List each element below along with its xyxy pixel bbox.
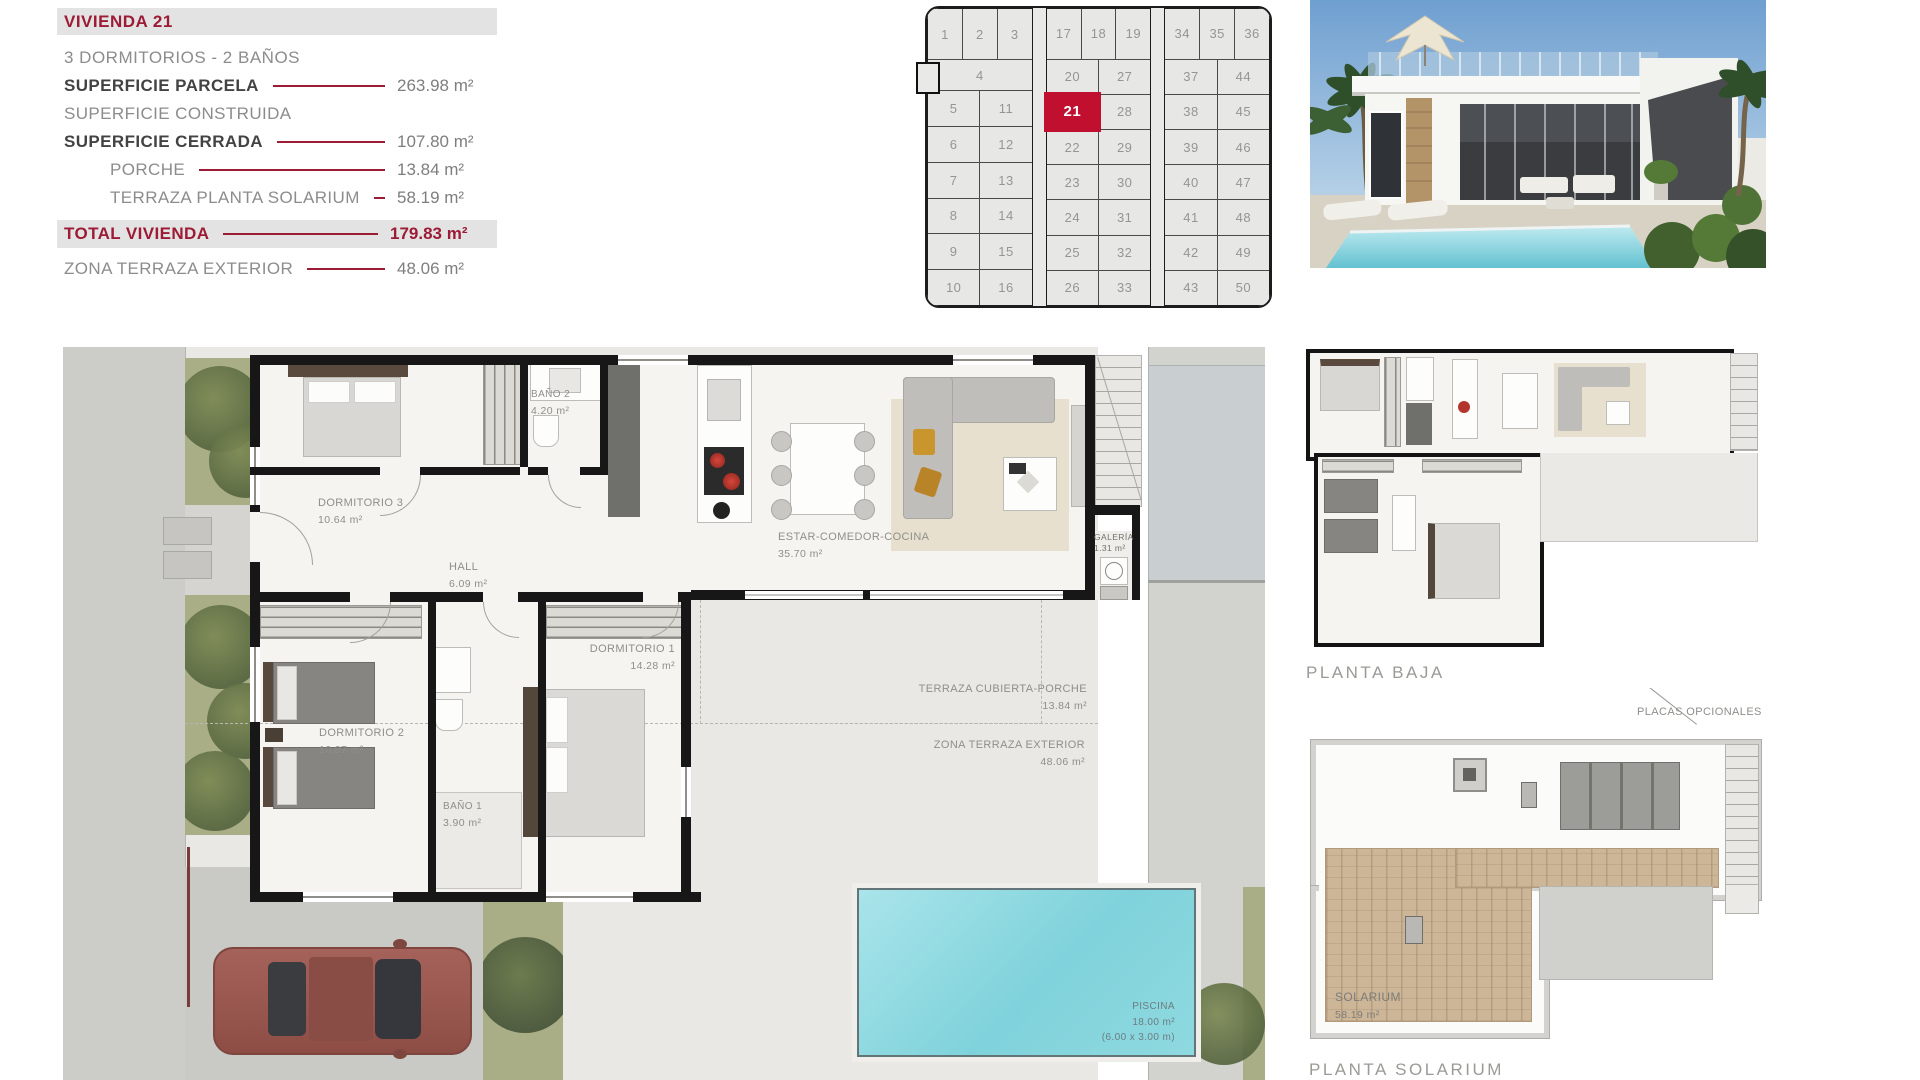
- left-sidewalk: [63, 347, 186, 1080]
- hob-burner: [723, 473, 740, 490]
- site-cell-8: 8: [928, 199, 979, 234]
- car-rear-window: [268, 962, 306, 1036]
- boundary-post: [187, 847, 190, 1007]
- site-cell-41: 41: [1165, 200, 1216, 234]
- roof-slab: [1352, 76, 1664, 94]
- mini-twin-bed: [1324, 519, 1378, 553]
- site-cell-13: 13: [979, 163, 1031, 198]
- window: [250, 647, 260, 722]
- row-value: 263.98 m²: [397, 76, 497, 96]
- row-label: PORCHE: [110, 160, 185, 180]
- site-cell-25: 25: [1047, 236, 1098, 270]
- wall: [600, 355, 608, 467]
- site-cell-34: 34: [1165, 9, 1199, 59]
- wall: [250, 600, 260, 902]
- kitchen-hob: [704, 447, 744, 495]
- unit-subtitle: 3 DORMITORIOS - 2 BAÑOS: [64, 48, 497, 68]
- wall: [250, 355, 260, 447]
- mini-hob: [1458, 401, 1470, 413]
- site-cell-22: 22: [1047, 130, 1098, 164]
- dining-chair: [854, 431, 875, 452]
- site-cell-3: 3: [997, 9, 1032, 59]
- site-cell-40: 40: [1165, 165, 1216, 199]
- deck-vent: [1405, 916, 1423, 944]
- site-plan-annex-box: [916, 62, 940, 94]
- site-cell-38: 38: [1165, 95, 1216, 129]
- villa-photo: [1310, 0, 1766, 268]
- garden-strip-bottom: [483, 897, 563, 1080]
- site-cell-27: 27: [1098, 60, 1150, 94]
- kitchen-tall-units: [608, 361, 640, 517]
- site-plan-grid: 1234511612713814915101617181920272128222…: [925, 6, 1272, 308]
- row-value: 48.06 m²: [397, 259, 497, 279]
- site-cell-20: 20: [1047, 60, 1098, 94]
- washer-drum: [1105, 562, 1123, 580]
- mini-porch: [1540, 453, 1758, 542]
- leader-line: [307, 268, 385, 270]
- bed-headboard: [288, 363, 408, 377]
- site-cell-14: 14: [979, 199, 1031, 234]
- tv-bench: [1071, 405, 1086, 507]
- site-cell-10: 10: [928, 270, 979, 305]
- wall: [250, 505, 260, 512]
- row-label: SUPERFICIE CERRADA: [64, 132, 263, 152]
- site-cell-23: 23: [1047, 165, 1098, 199]
- pillow: [277, 666, 297, 720]
- cushion: [913, 429, 935, 455]
- stone-pillar: [1406, 98, 1432, 205]
- wall: [1132, 515, 1140, 600]
- mini-double-bed: [1428, 523, 1500, 599]
- area-row-parcela: SUPERFICIE PARCELA 263.98 m²: [64, 75, 497, 96]
- total-label: TOTAL VIVIENDA: [64, 224, 209, 244]
- site-cell-29: 29: [1098, 130, 1150, 164]
- site-cell-36: 36: [1234, 9, 1269, 59]
- water-heater: [1100, 586, 1128, 600]
- site-cell-49: 49: [1217, 236, 1269, 270]
- car-mirror: [393, 1049, 407, 1059]
- area-row-zona-terraza: ZONA TERRAZA EXTERIOR 48.06 m²: [64, 258, 497, 279]
- leader-line: [223, 233, 378, 235]
- planta-baja-label: PLANTA BAJA: [1306, 663, 1445, 683]
- pillow: [308, 381, 350, 403]
- site-cell-1: 1: [928, 9, 962, 59]
- label-piscina: PISCINA 18.00 m² (6.00 x 3.00 m): [1015, 999, 1175, 1046]
- wall: [863, 590, 870, 600]
- wall: [528, 467, 548, 475]
- mini-dining: [1502, 373, 1538, 429]
- concrete-roof: [1539, 886, 1713, 980]
- row-label: SUPERFICIE PARCELA: [64, 76, 259, 96]
- wardrobe-dorm3: [483, 363, 522, 465]
- window: [953, 355, 1033, 365]
- car-mirror: [393, 939, 407, 949]
- label-bano1: BAÑO 1 3.90 m²: [443, 799, 482, 831]
- bedroom-window: [1370, 112, 1402, 198]
- window: [250, 447, 260, 505]
- site-cell-39: 39: [1165, 130, 1216, 164]
- site-cell-5: 5: [928, 91, 979, 126]
- site-cell-9: 9: [928, 234, 979, 269]
- mini-bed: [1320, 359, 1380, 411]
- solar-panels: [1560, 762, 1680, 830]
- dining-chair: [854, 465, 875, 486]
- wall: [420, 467, 520, 475]
- solarium-deck-arm: [1455, 848, 1719, 888]
- leader-line: [273, 85, 385, 87]
- mini-closet: [1422, 459, 1522, 473]
- row-label: ZONA TERRAZA EXTERIOR: [64, 259, 293, 279]
- wall: [580, 467, 608, 475]
- site-cell-19: 19: [1115, 9, 1150, 59]
- entry-step: [163, 517, 212, 545]
- dining-chair: [854, 499, 875, 520]
- site-cell-11: 11: [979, 91, 1031, 126]
- site-cell-45: 45: [1217, 95, 1269, 129]
- wall: [436, 592, 483, 602]
- pillow: [354, 381, 396, 403]
- label-porche: TERRAZA CUBIERTA-PORCHE 13.84 m²: [887, 681, 1087, 714]
- site-cell-24: 24: [1047, 200, 1098, 234]
- site-cell-32: 32: [1098, 236, 1150, 270]
- wall: [1085, 355, 1095, 600]
- mini-coffee-table: [1606, 401, 1630, 425]
- roof-vent: [1521, 782, 1537, 808]
- bed-headboard: [263, 662, 273, 722]
- site-cell-7: 7: [928, 163, 979, 198]
- site-cell-21: 21: [1047, 95, 1098, 129]
- nightstand-lamp: [265, 728, 283, 742]
- site-cell-46: 46: [1217, 130, 1269, 164]
- pillow: [546, 747, 568, 793]
- bed-headboard: [263, 747, 273, 807]
- mini-closet: [1322, 459, 1394, 473]
- wardrobe-dorm2: [260, 605, 422, 639]
- chimney-core: [1463, 768, 1476, 781]
- site-cell-15: 15: [979, 234, 1031, 269]
- row-label: SUPERFICIE CONSTRUIDA: [64, 104, 292, 124]
- label-bano2: BAÑO 2 4.20 m²: [531, 387, 570, 419]
- site-cell-12: 12: [979, 127, 1031, 162]
- mini-closet: [1384, 357, 1401, 447]
- wall: [518, 592, 538, 602]
- driveway-entry-pad: [1148, 365, 1265, 582]
- roof-terrace: [1368, 52, 1658, 78]
- toilet: [533, 415, 559, 447]
- unit-title: VIVIENDA 21: [64, 12, 173, 32]
- pillow: [277, 751, 297, 805]
- site-cell-33: 33: [1098, 271, 1150, 305]
- label-estar: ESTAR-COMEDOR-COCINA 35.70 m²: [778, 529, 929, 562]
- site-cell-42: 42: [1165, 236, 1216, 270]
- area-row-construida: SUPERFICIE CONSTRUIDA: [64, 103, 497, 124]
- row-value: 13.84 m²: [397, 160, 497, 180]
- toilet: [435, 699, 463, 731]
- coffee-table-tray: [1009, 463, 1026, 474]
- site-cell-37: 37: [1165, 60, 1216, 94]
- planta-baja-plan: PLANTA BAJA: [1300, 345, 1770, 690]
- label-hall: HALL 6.09 m²: [449, 559, 487, 592]
- site-cell-35: 35: [1199, 9, 1234, 59]
- leader-line: [277, 141, 385, 143]
- site-cell-31: 31: [1098, 200, 1150, 234]
- mini-sofa: [1558, 367, 1582, 431]
- planta-solarium-label: PLANTA SOLARIUM: [1309, 1060, 1504, 1080]
- hob-burner: [710, 453, 725, 468]
- area-row-cerrada: SUPERFICIE CERRADA 107.80 m²: [64, 131, 497, 152]
- total-row: TOTAL VIVIENDA 179.83 m²: [57, 220, 497, 248]
- site-cell-16: 16: [979, 270, 1031, 305]
- window: [303, 892, 393, 902]
- site-plan: 1234511612713814915101617181920272128222…: [925, 6, 1272, 308]
- wall: [428, 592, 436, 902]
- total-value: 179.83 m²: [390, 224, 490, 244]
- mini-twin-bed: [1324, 479, 1378, 513]
- solarium-stairs: [1725, 744, 1759, 886]
- dining-chair: [771, 465, 792, 486]
- window: [681, 767, 691, 817]
- entry-step: [163, 551, 212, 579]
- pillow: [546, 697, 568, 743]
- site-cell-50: 50: [1217, 271, 1269, 305]
- area-row-terraza-solarium: TERRAZA PLANTA SOLARIUM 58.19 m²: [64, 187, 497, 208]
- site-block-1: 1718192027212822292330243125322633: [1046, 8, 1152, 306]
- wall: [538, 592, 546, 902]
- row-value: 107.80 m²: [397, 132, 497, 152]
- car-roof: [309, 957, 373, 1041]
- gate-line: [1148, 580, 1265, 583]
- wall: [546, 592, 643, 602]
- mini-units: [1406, 403, 1432, 445]
- kitchen-sink: [707, 379, 741, 421]
- site-cell-2: 2: [962, 9, 997, 59]
- label-galeria: GALERÍA 1.31 m²: [1094, 532, 1134, 555]
- stairs-landing: [1725, 884, 1759, 914]
- site-cell-28: 28: [1098, 95, 1150, 129]
- dining-chair: [771, 499, 792, 520]
- leader-line: [374, 197, 385, 199]
- site-cell-43: 43: [1165, 271, 1216, 305]
- mini-stairs: [1730, 353, 1758, 451]
- row-value: 58.19 m²: [397, 188, 497, 208]
- site-cell-47: 47: [1217, 165, 1269, 199]
- site-block-0: 12345116127138149151016: [927, 8, 1033, 306]
- solarium-label: SOLARIUM 58.19 m²: [1335, 988, 1401, 1023]
- sliding-glass-door: [745, 591, 1063, 599]
- pan: [713, 502, 730, 519]
- mini-bath: [1406, 357, 1434, 401]
- site-cell-4: 4: [928, 60, 1032, 90]
- site-cell-26: 26: [1047, 271, 1098, 305]
- site-cell-18: 18: [1081, 9, 1116, 59]
- main-floor-plan: DORMITORIO 3 10.64 m² BAÑO 2 4.20 m² HAL…: [63, 347, 1265, 1080]
- site-cell-17: 17: [1047, 9, 1081, 59]
- wall: [520, 355, 528, 467]
- bath1-sink: [435, 647, 471, 693]
- mini-bath1: [1392, 495, 1416, 551]
- car-windshield: [375, 959, 421, 1039]
- wall: [250, 467, 380, 475]
- window: [618, 355, 688, 365]
- wall: [678, 592, 691, 602]
- solarium-plan: PLACAS OPCIONALES SOLARIUM 58.19 m² PLAN…: [1305, 688, 1805, 1080]
- leader-line: [199, 169, 385, 171]
- site-cell-48: 48: [1217, 200, 1269, 234]
- site-block-2: 3435363744384539464047414842494350: [1164, 8, 1270, 306]
- dining-chair: [771, 431, 792, 452]
- wall: [250, 592, 350, 602]
- area-row-porche: PORCHE 13.84 m²: [64, 159, 497, 180]
- placas-opcionales-label: PLACAS OPCIONALES: [1637, 704, 1762, 721]
- info-panel: VIVIENDA 21 3 DORMITORIOS - 2 BAÑOS SUPE…: [57, 8, 497, 279]
- wall: [390, 592, 428, 602]
- mini-island: [1452, 359, 1478, 439]
- label-dormitorio1: DORMITORIO 1 14.28 m²: [535, 641, 675, 674]
- site-cell-30: 30: [1098, 165, 1150, 199]
- label-zona-terraza: ZONA TERRAZA EXTERIOR 48.06 m²: [885, 737, 1085, 770]
- row-label: TERRAZA PLANTA SOLARIUM: [110, 188, 360, 208]
- window: [543, 892, 633, 902]
- wall: [681, 600, 691, 902]
- glass-reflection: [1460, 104, 1640, 142]
- site-cell-44: 44: [1217, 60, 1269, 94]
- label-dormitorio3: DORMITORIO 3 10.64 m²: [318, 495, 403, 528]
- wall: [1095, 505, 1140, 515]
- unit-title-bar: VIVIENDA 21: [57, 8, 497, 35]
- label-dormitorio2: DORMITORIO 2 10.87 m²: [319, 725, 404, 758]
- site-cell-6: 6: [928, 127, 979, 162]
